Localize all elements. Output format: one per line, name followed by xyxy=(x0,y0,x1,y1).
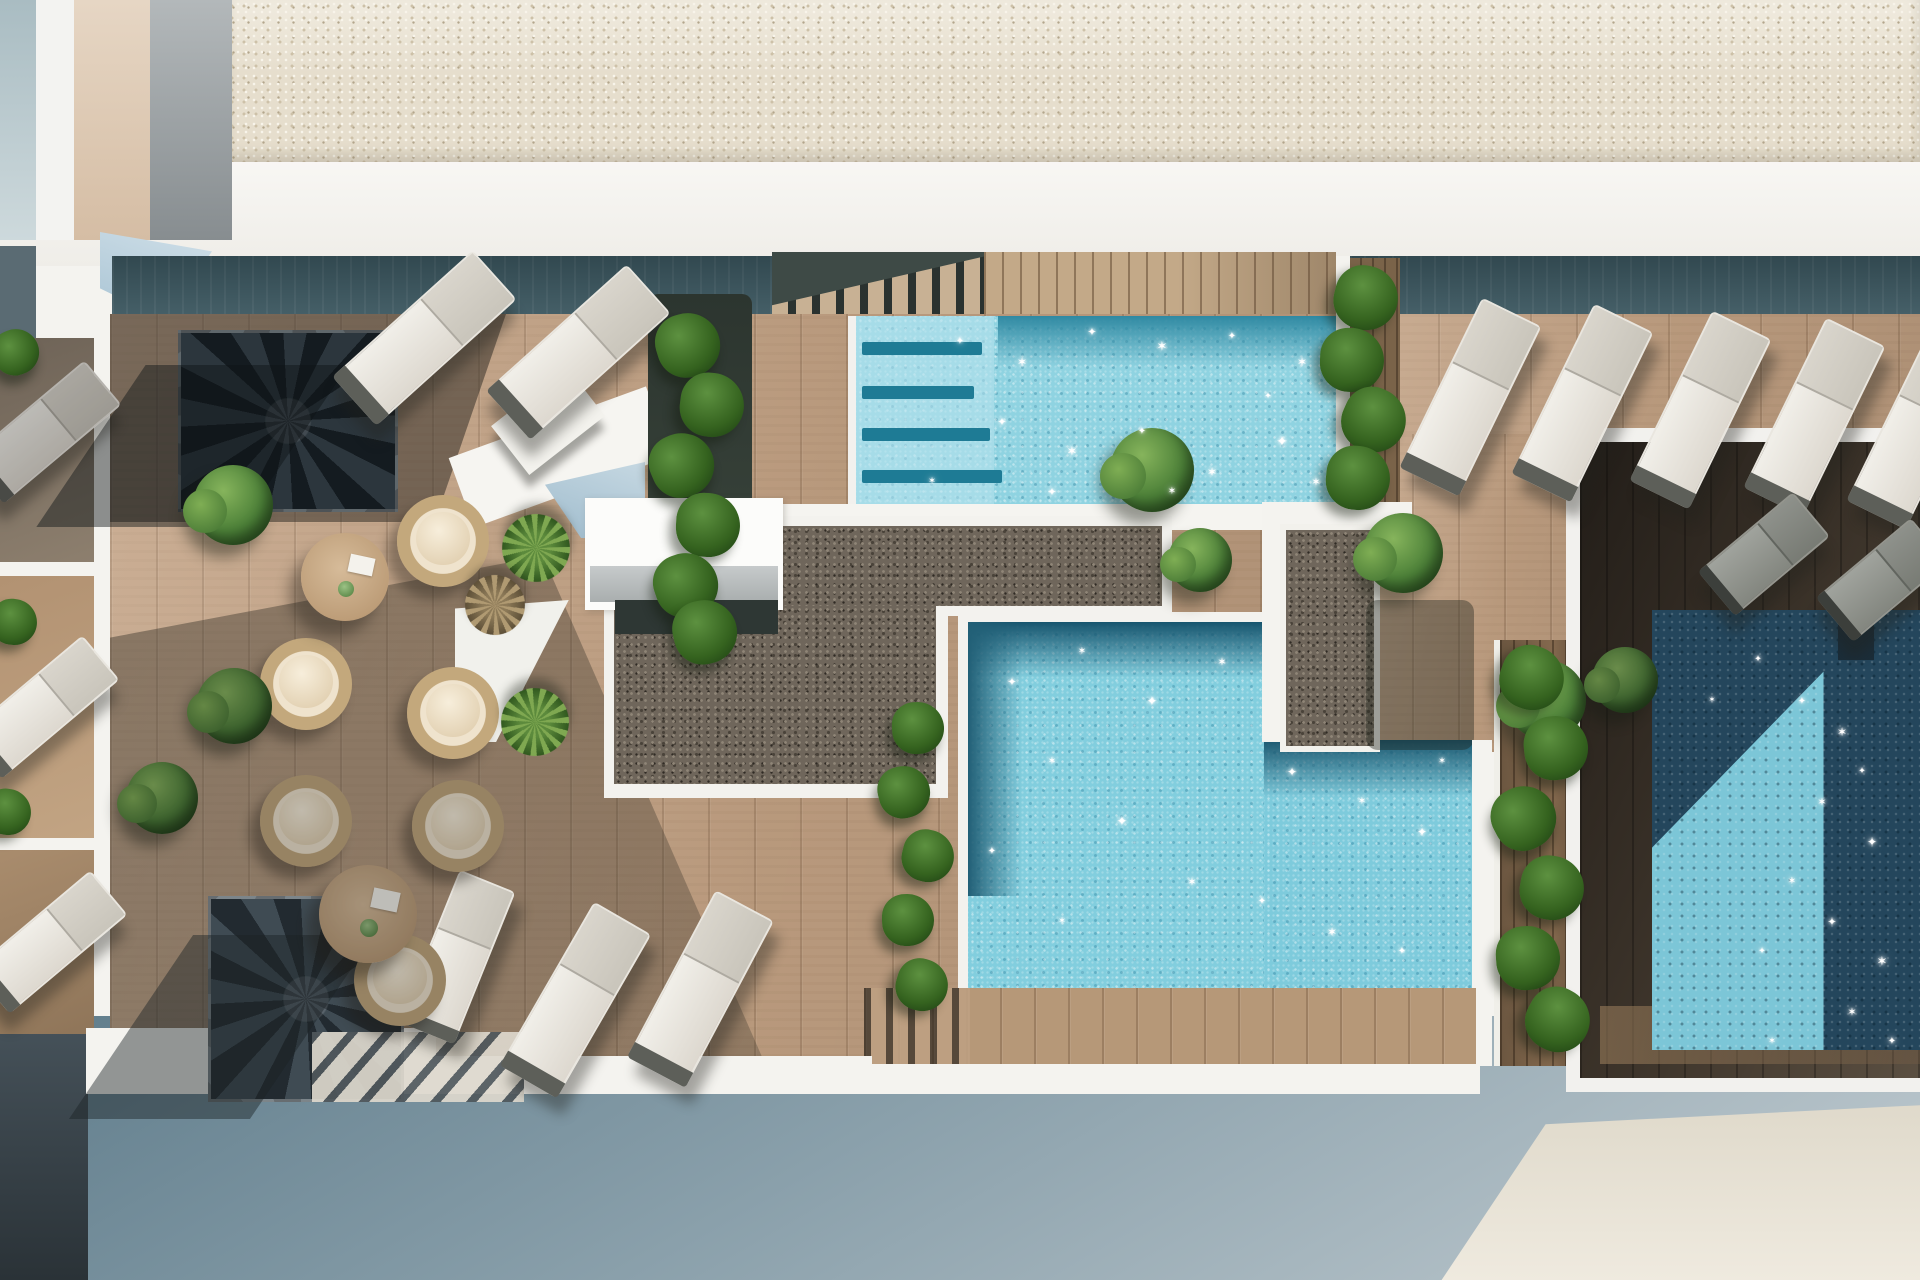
deck-shadow-strip-right xyxy=(1336,256,1920,320)
shrub xyxy=(1363,513,1443,593)
wicker-lounge-chair xyxy=(397,495,489,587)
wicker-lounge-chair xyxy=(407,667,499,759)
white-wall-vertical-1 xyxy=(1262,502,1280,742)
pool-step-2 xyxy=(862,386,974,399)
shrub xyxy=(193,465,273,545)
rooftop-terrace-render: ✦✶✦✶✦✶✦✶✦✶✦✶✦✶✦✶✦✶✦✶✦✶✦✶✦✶✦✶✦✶✦✶✦✶✦✶✦✶✦✶… xyxy=(0,0,1920,1280)
pool-step-3 xyxy=(862,428,990,441)
upper-pool-deep-band xyxy=(998,316,1344,368)
wall-strip-gray xyxy=(150,0,232,240)
wicker-lounge-chair xyxy=(260,775,352,867)
shrub xyxy=(1110,428,1194,512)
wall-strip-blue xyxy=(0,0,36,240)
wicker-lounge-chair xyxy=(260,638,352,730)
round-coffee-table xyxy=(301,533,389,621)
pool-step-4 xyxy=(862,470,1002,483)
wicker-lounge-chair xyxy=(412,780,504,872)
wall-strip-wood xyxy=(74,0,150,240)
lower-pool-east-arm xyxy=(1264,740,1472,992)
shrub xyxy=(1592,647,1658,713)
lower-pool-main xyxy=(958,612,1274,1002)
dark-side-panel xyxy=(0,1024,88,1280)
round-coffee-table xyxy=(319,865,417,963)
gravel-roof-top xyxy=(226,0,1920,162)
shrub xyxy=(196,668,272,744)
roof-ledge-white xyxy=(0,158,1920,266)
shrub xyxy=(126,762,198,834)
striped-awning xyxy=(312,1032,524,1102)
parapet-white-right xyxy=(868,1064,1480,1094)
upper-pool xyxy=(848,316,1344,510)
pool-step-1 xyxy=(862,342,982,355)
wall-strip-white xyxy=(36,0,74,240)
shrub xyxy=(1168,528,1232,592)
bush-shadow-right-mid xyxy=(1366,600,1474,750)
dark-wall-notch xyxy=(0,246,36,338)
lower-pool-deep-band-left xyxy=(968,622,1022,896)
